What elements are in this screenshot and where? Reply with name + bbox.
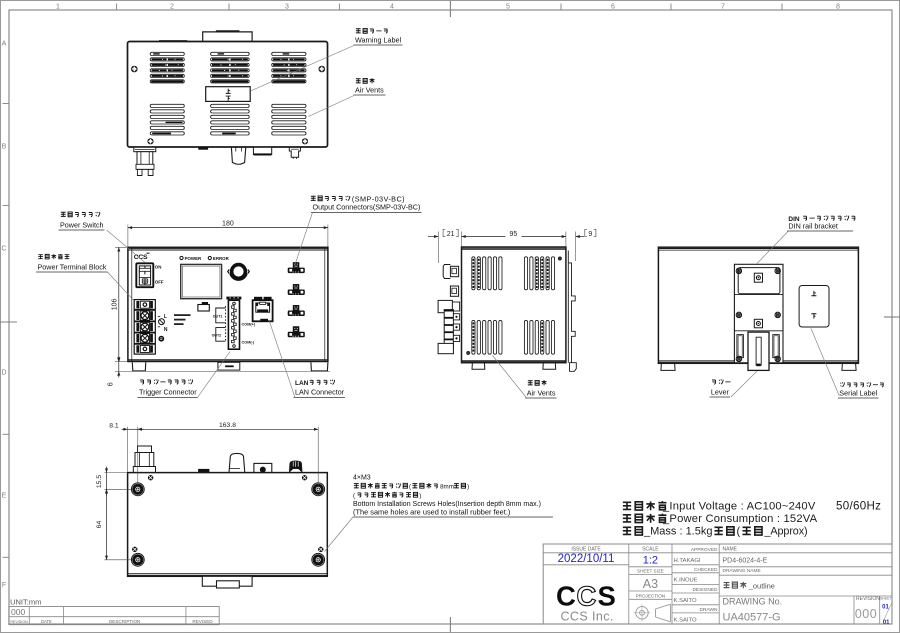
svg-text:6: 6 bbox=[611, 3, 615, 10]
svg-text:F: F bbox=[2, 582, 6, 589]
svg-text:APPROVED: APPROVED bbox=[691, 547, 718, 553]
svg-text:5: 5 bbox=[506, 3, 510, 10]
svg-text:SHEET SIZE: SHEET SIZE bbox=[637, 569, 664, 574]
svg-text:DESCRIPTION: DESCRIPTION bbox=[109, 619, 140, 624]
svg-text:OUT1: OUT1 bbox=[213, 314, 223, 318]
svg-text:ERROR: ERROR bbox=[213, 256, 230, 261]
svg-text:_Approx): _Approx) bbox=[764, 526, 808, 538]
svg-text:3: 3 bbox=[285, 3, 289, 10]
svg-text:64: 64 bbox=[96, 521, 103, 529]
svg-text:_Input Voltage : AC100~240V: _Input Voltage : AC100~240V bbox=[662, 501, 816, 513]
svg-text:D: D bbox=[1, 370, 6, 377]
svg-text:LAN: LAN bbox=[295, 380, 309, 387]
svg-text:CCS Inc.: CCS Inc. bbox=[561, 610, 614, 624]
svg-text:01: 01 bbox=[882, 605, 889, 611]
svg-text:000: 000 bbox=[11, 607, 25, 617]
svg-text:PD4-6024-4-E: PD4-6024-4-E bbox=[723, 558, 768, 565]
svg-text:9: 9 bbox=[588, 231, 592, 238]
svg-text:DIN rail bracket: DIN rail bracket bbox=[788, 222, 838, 231]
svg-text:A: A bbox=[2, 41, 7, 48]
svg-text:95: 95 bbox=[510, 231, 518, 238]
svg-text:K.SAITO: K.SAITO bbox=[674, 598, 698, 604]
svg-text:H.TAKAGI: H.TAKAGI bbox=[674, 558, 701, 564]
svg-text:OFF: OFF bbox=[155, 279, 164, 284]
svg-text:POWER: POWER bbox=[185, 256, 202, 261]
svg-text:_outline: _outline bbox=[748, 582, 775, 591]
svg-text:COM(-): COM(-) bbox=[242, 341, 255, 345]
svg-text:8mm: 8mm bbox=[440, 483, 454, 490]
svg-text:4×M3: 4×M3 bbox=[353, 475, 371, 482]
svg-text:C: C bbox=[1, 246, 6, 253]
svg-text:ON: ON bbox=[155, 265, 162, 270]
svg-text:NAME: NAME bbox=[723, 547, 738, 553]
svg-text:REVISED: REVISED bbox=[192, 619, 213, 624]
svg-text:Lever: Lever bbox=[711, 388, 730, 397]
svg-text:LAN Connector: LAN Connector bbox=[295, 388, 345, 397]
svg-text:REVISION: REVISION bbox=[10, 620, 28, 624]
svg-text:_Mass : 1.5kg: _Mass : 1.5kg bbox=[643, 526, 712, 538]
svg-text:COM(+): COM(+) bbox=[242, 322, 256, 326]
svg-text:Power Switch: Power Switch bbox=[60, 221, 104, 230]
svg-text:4: 4 bbox=[390, 3, 394, 10]
svg-text:15.5: 15.5 bbox=[96, 475, 103, 488]
svg-text:Air Vents: Air Vents bbox=[527, 389, 556, 398]
svg-text:106: 106 bbox=[111, 298, 118, 310]
svg-text:): ) bbox=[419, 492, 421, 499]
svg-text:UA40577-G: UA40577-G bbox=[723, 611, 781, 623]
svg-text:DRAWN: DRAWN bbox=[700, 607, 718, 613]
svg-text:(The same holes are used to in: (The same holes are used to install rubb… bbox=[353, 507, 510, 516]
svg-text:S: S bbox=[598, 581, 616, 612]
svg-text:180: 180 bbox=[222, 220, 234, 227]
svg-text:Serial Label: Serial Label bbox=[839, 389, 877, 398]
svg-text:A3: A3 bbox=[643, 577, 658, 591]
svg-text:DESIGNED: DESIGNED bbox=[692, 587, 718, 593]
svg-text:K.INOUE: K.INOUE bbox=[674, 578, 698, 584]
svg-text:B: B bbox=[2, 144, 7, 151]
svg-text:163.8: 163.8 bbox=[219, 422, 236, 429]
svg-text:CHECKED: CHECKED bbox=[694, 567, 718, 573]
svg-text:ISSUE DATE: ISSUE DATE bbox=[571, 547, 601, 553]
svg-text:7: 7 bbox=[721, 3, 725, 10]
svg-text:Output Connectors(SMP-03V-BC): Output Connectors(SMP-03V-BC) bbox=[313, 203, 421, 212]
svg-text:UNIT:mm: UNIT:mm bbox=[10, 598, 41, 607]
svg-text:50/60Hz: 50/60Hz bbox=[836, 500, 881, 513]
svg-text:N: N bbox=[164, 327, 168, 333]
svg-text:000: 000 bbox=[855, 607, 877, 621]
svg-text:C: C bbox=[577, 581, 597, 612]
svg-text:Power Terminal Block: Power Terminal Block bbox=[38, 263, 107, 272]
svg-text:REVISION: REVISION bbox=[856, 596, 880, 602]
svg-text:1: 1 bbox=[56, 3, 60, 10]
svg-text:C: C bbox=[556, 581, 576, 612]
svg-text:DATE: DATE bbox=[41, 619, 52, 624]
svg-text:8.1: 8.1 bbox=[109, 422, 119, 429]
svg-text:6: 6 bbox=[107, 382, 114, 386]
svg-text:_Power Consumption : 152VA: _Power Consumption : 152VA bbox=[662, 513, 818, 525]
svg-text:L: L bbox=[164, 314, 167, 320]
svg-text:E: E bbox=[2, 493, 7, 500]
svg-text:OUT2: OUT2 bbox=[212, 334, 222, 338]
svg-text:01: 01 bbox=[883, 620, 890, 626]
svg-text:SCALE: SCALE bbox=[642, 547, 659, 553]
svg-text:8: 8 bbox=[836, 3, 840, 10]
svg-text:21: 21 bbox=[447, 231, 455, 238]
svg-text:DRAWING NAME: DRAWING NAME bbox=[723, 568, 761, 574]
svg-text:(: ( bbox=[737, 526, 741, 538]
svg-text:2022/10/11: 2022/10/11 bbox=[558, 553, 615, 565]
svg-text:Air Vents: Air Vents bbox=[355, 86, 384, 95]
svg-text:SHEET: SHEET bbox=[880, 596, 891, 600]
svg-text:K.SAITO: K.SAITO bbox=[674, 617, 698, 623]
svg-text:PROJECTION: PROJECTION bbox=[636, 593, 666, 598]
svg-text:Trigger Connector: Trigger Connector bbox=[139, 388, 197, 397]
svg-text:2: 2 bbox=[170, 3, 174, 10]
svg-text:Warning Label: Warning Label bbox=[355, 36, 401, 45]
svg-text:1:2: 1:2 bbox=[643, 555, 658, 567]
svg-text:): ) bbox=[467, 483, 469, 490]
svg-text:DRAWING No.: DRAWING No. bbox=[723, 596, 783, 606]
